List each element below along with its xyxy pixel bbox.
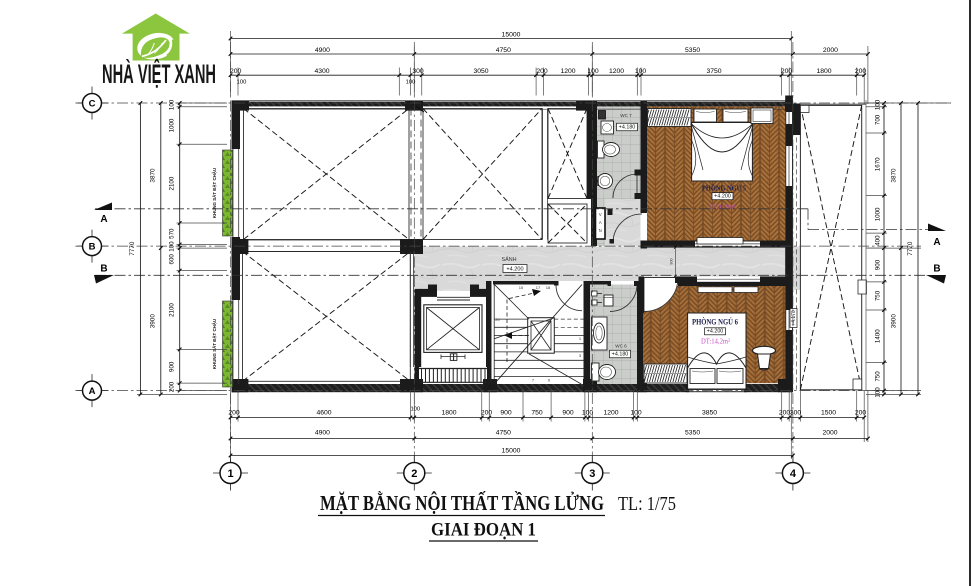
svg-text:5350: 5350: [685, 429, 700, 436]
svg-text:18: 18: [546, 285, 551, 290]
svg-text:4750: 4750: [496, 429, 511, 436]
svg-text:KHUNG SẮT ĐẶT CHẬU: KHUNG SẮT ĐẶT CHẬU: [212, 168, 217, 218]
svg-text:3870: 3870: [150, 168, 157, 183]
svg-text:900: 900: [562, 409, 574, 416]
svg-text:+4.200: +4.200: [707, 329, 724, 335]
svg-text:200: 200: [228, 409, 240, 416]
svg-text:B: B: [89, 242, 96, 253]
svg-text:GIAI ĐOẠN 1: GIAI ĐOẠN 1: [431, 520, 536, 541]
svg-text:570: 570: [169, 228, 176, 239]
svg-text:200: 200: [536, 68, 548, 75]
svg-text:1800: 1800: [816, 68, 831, 75]
svg-text:N: N: [599, 228, 602, 233]
svg-text:750: 750: [875, 371, 882, 382]
svg-text:1000: 1000: [169, 118, 176, 132]
svg-text:100: 100: [635, 68, 647, 75]
svg-text:3050: 3050: [473, 68, 488, 75]
svg-text:4600: 4600: [316, 409, 331, 416]
svg-text:DT:14,2m²: DT:14,2m²: [701, 338, 730, 346]
svg-text:1: 1: [227, 468, 233, 480]
svg-text:+4.170: +4.170: [791, 310, 797, 326]
svg-text:1500: 1500: [821, 409, 836, 416]
svg-text:200: 200: [169, 381, 176, 392]
svg-text:200: 200: [481, 409, 493, 416]
svg-text:4: 4: [790, 468, 797, 480]
svg-text:TL: 1/75: TL: 1/75: [618, 493, 676, 515]
svg-text:B: B: [933, 264, 940, 275]
svg-text:+4.200: +4.200: [506, 266, 523, 272]
svg-text:4900: 4900: [315, 429, 330, 436]
svg-text:3900: 3900: [150, 314, 157, 329]
svg-text:15000: 15000: [502, 32, 521, 39]
svg-text:7770: 7770: [907, 241, 914, 256]
svg-text:100: 100: [582, 409, 594, 416]
svg-text:100: 100: [630, 409, 642, 416]
svg-text:700: 700: [875, 114, 882, 125]
svg-text:2000: 2000: [823, 47, 838, 54]
svg-text:4300: 4300: [314, 68, 329, 75]
svg-text:1200: 1200: [609, 68, 624, 75]
svg-text:15000: 15000: [502, 447, 521, 454]
svg-text:900: 900: [169, 361, 176, 372]
svg-text:200: 200: [855, 68, 867, 75]
svg-text:3750: 3750: [706, 68, 721, 75]
svg-text:2100: 2100: [169, 303, 176, 317]
svg-text:2000: 2000: [822, 429, 837, 436]
svg-text:2100: 2100: [169, 176, 176, 190]
svg-text:WC 6: WC 6: [615, 344, 627, 349]
svg-text:+4.180: +4.180: [612, 352, 629, 358]
svg-text:7770: 7770: [129, 241, 136, 256]
svg-text:PHÒNG NGỦ 5: PHÒNG NGỦ 5: [702, 183, 746, 193]
svg-text:300: 300: [412, 68, 424, 75]
svg-text:3850: 3850: [702, 409, 717, 416]
svg-text:WC 7: WC 7: [620, 113, 632, 118]
svg-text:Ô TĂNG SÁNG: Ô TĂNG SÁNG: [786, 335, 793, 368]
svg-text:200: 200: [781, 68, 793, 75]
svg-text:DT:11,9m²: DT:11,9m²: [710, 205, 735, 211]
svg-text:4750: 4750: [496, 47, 511, 54]
svg-text:1000: 1000: [875, 207, 882, 221]
svg-text:1800: 1800: [441, 409, 456, 416]
svg-text:750: 750: [875, 290, 882, 301]
svg-text:1400: 1400: [875, 329, 882, 343]
svg-text:900: 900: [875, 259, 882, 270]
svg-text:100: 100: [169, 99, 176, 110]
svg-text:750: 750: [531, 409, 543, 416]
svg-text:A: A: [599, 220, 602, 225]
svg-text:MẶT BẰNG NỘI THẤT TẦNG LỬNG: MẶT BẰNG NỘI THẤT TẦNG LỬNG: [320, 491, 604, 515]
svg-text:400: 400: [875, 235, 882, 246]
svg-text:900: 900: [500, 409, 512, 416]
svg-text:+4.200: +4.200: [714, 194, 731, 200]
svg-text:900: 900: [670, 258, 674, 264]
svg-text:17: 17: [536, 285, 541, 290]
svg-text:600: 600: [169, 254, 176, 265]
svg-text:100: 100: [410, 407, 420, 413]
svg-text:15: 15: [519, 285, 524, 290]
svg-text:A: A: [933, 237, 940, 248]
svg-text:A: A: [100, 214, 107, 225]
svg-text:C: C: [89, 98, 96, 109]
svg-text:1200: 1200: [603, 409, 618, 416]
svg-text:100: 100: [587, 68, 599, 75]
svg-text:B: B: [100, 264, 107, 275]
svg-text:100: 100: [875, 387, 882, 398]
svg-text:200: 200: [855, 409, 867, 416]
svg-text:5350: 5350: [685, 47, 700, 54]
svg-text:100: 100: [875, 99, 882, 110]
svg-text:3: 3: [589, 468, 595, 480]
svg-text:+4.180: +4.180: [619, 125, 636, 131]
svg-text:PHÒNG NGỦ 6: PHÒNG NGỦ 6: [692, 317, 738, 327]
svg-text:NHÀ VIỆT XANH: NHÀ VIỆT XANH: [102, 59, 216, 89]
svg-text:V: V: [599, 212, 602, 217]
svg-text:20: 20: [495, 317, 500, 322]
svg-text:100: 100: [169, 241, 176, 252]
svg-text:3870: 3870: [891, 168, 898, 183]
svg-text:KHUNG SẮT ĐẶT CHẬU: KHUNG SẮT ĐẶT CHẬU: [212, 319, 217, 369]
svg-text:200: 200: [779, 409, 791, 416]
svg-text:100: 100: [237, 80, 247, 86]
svg-text:100: 100: [406, 80, 416, 86]
svg-text:A: A: [89, 386, 96, 397]
svg-text:3900: 3900: [891, 314, 898, 329]
svg-text:SẢNH: SẢNH: [502, 256, 517, 263]
svg-text:1200: 1200: [560, 68, 575, 75]
svg-text:200: 200: [230, 68, 242, 75]
svg-text:300: 300: [790, 409, 802, 416]
svg-text:2: 2: [411, 468, 417, 480]
svg-text:1670: 1670: [875, 157, 882, 171]
svg-text:4900: 4900: [315, 47, 330, 54]
